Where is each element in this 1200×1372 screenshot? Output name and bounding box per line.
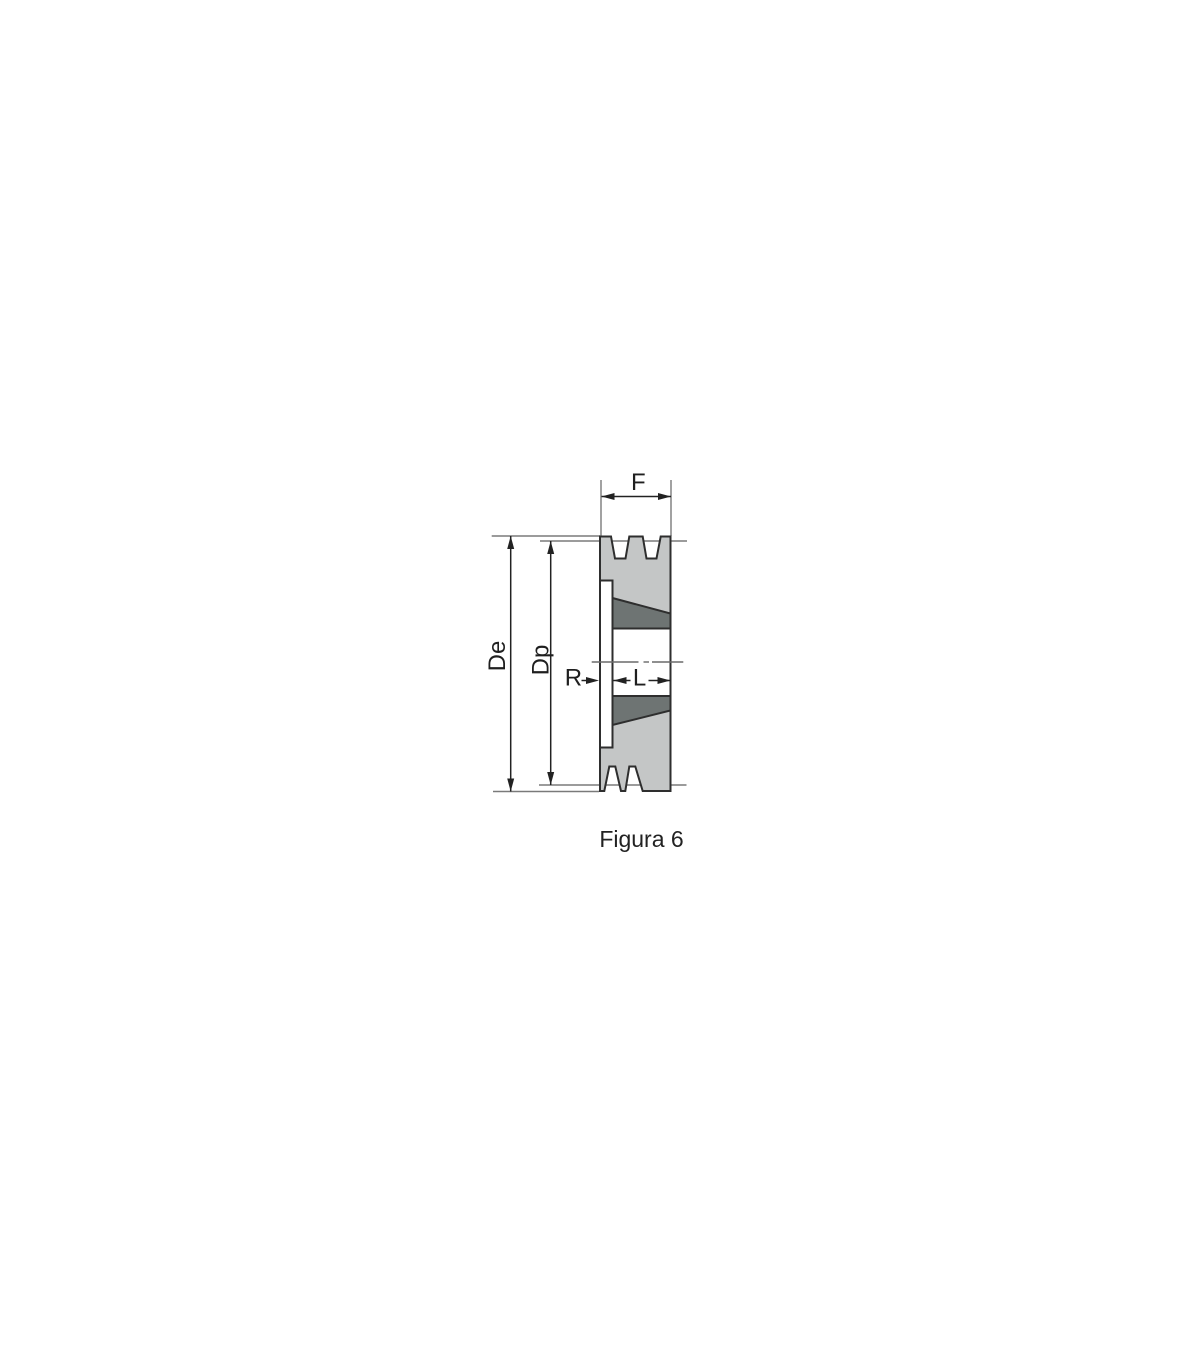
dim-de-label: De <box>484 641 511 672</box>
dim-f-arrow-left <box>602 493 615 500</box>
dim-l-label: L <box>633 665 646 692</box>
dim-f-arrow-right <box>658 493 671 500</box>
dim-r-arrow <box>586 677 599 684</box>
bushing-flange <box>600 581 613 748</box>
dim-dp-label: Dp <box>528 645 555 676</box>
page: F De Dp R L Figura 6 <box>0 0 1200 1372</box>
dim-f-label: F <box>631 469 646 496</box>
dim-de-arrow-top <box>507 536 514 549</box>
dim-r-label: R <box>565 665 582 692</box>
dim-de-arrow-bottom <box>507 779 514 792</box>
pulley-section-figure: F De Dp R L Figura 6 <box>0 0 1200 1372</box>
dim-dp-arrow-bottom <box>547 772 554 785</box>
dim-dp-arrow-top <box>547 541 554 554</box>
figure-caption: Figura 6 <box>599 826 683 852</box>
